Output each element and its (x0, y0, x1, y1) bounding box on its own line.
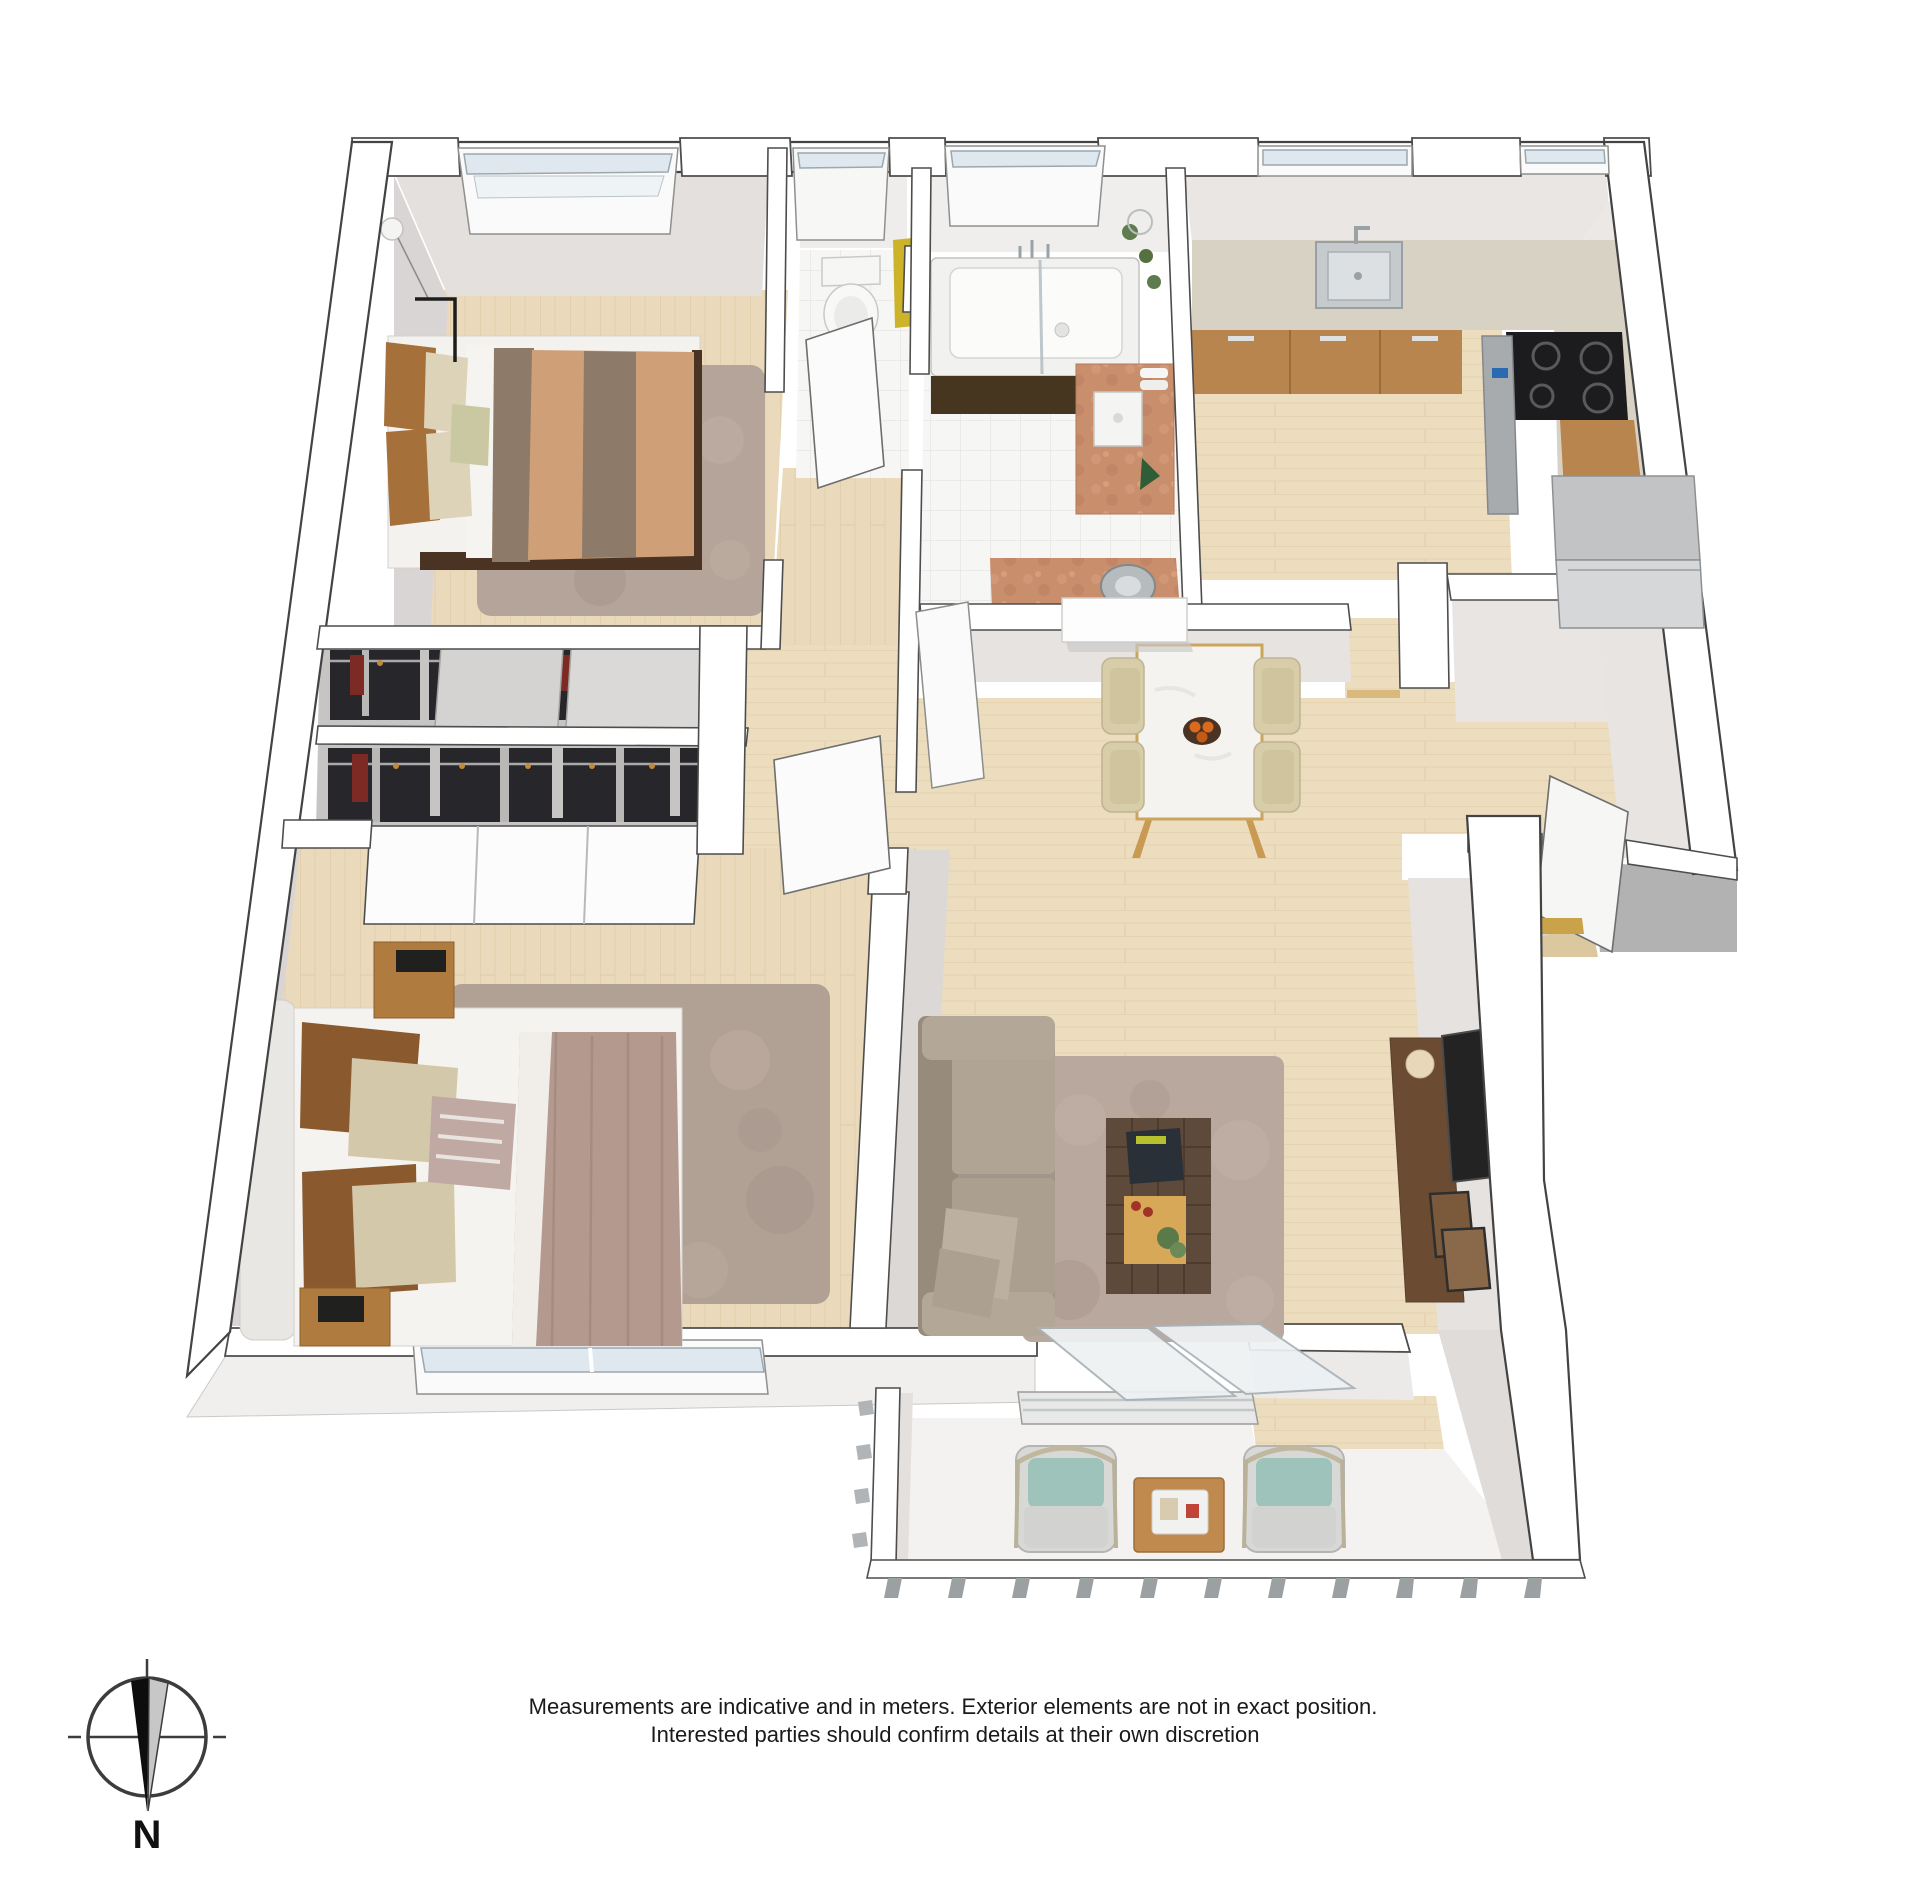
svg-text:Interested parties should conf: Interested parties should confirm detail… (651, 1722, 1260, 1747)
svg-text:N: N (133, 1813, 162, 1857)
svg-text:Measurements are indicative an: Measurements are indicative and in meter… (529, 1694, 1378, 1719)
